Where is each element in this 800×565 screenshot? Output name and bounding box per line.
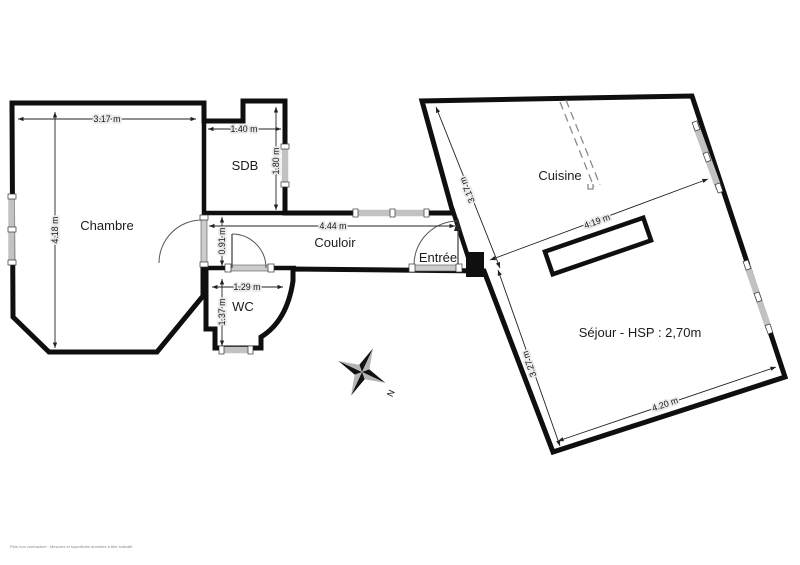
dim-label: 3.17 m [94, 114, 121, 124]
door-jamb [409, 264, 415, 272]
dim-label: 0.91 m [217, 228, 227, 255]
wall-stub-entree-sejour [466, 252, 484, 277]
door-jamb [200, 262, 208, 267]
page-background [0, 0, 800, 565]
dim-label: 4.18 m [50, 217, 60, 244]
dim-label: 1.40 m [231, 124, 258, 134]
window-cap [8, 194, 16, 199]
room-label-sejour: Séjour - HSP : 2,70m [579, 325, 702, 340]
door-jamb [200, 215, 208, 220]
window-cap [8, 227, 16, 232]
watermark-text: Plan non contractuel - Mesures et superf… [10, 544, 133, 549]
window-cap [424, 209, 429, 217]
room-label-chambre: Chambre [80, 218, 133, 233]
entrance-door-band [412, 265, 458, 271]
window-cap [281, 182, 289, 187]
window-cap [390, 209, 395, 217]
chambre-door-leaf [201, 218, 207, 264]
dim-label: 1.29 m [234, 282, 261, 292]
window-cap [248, 346, 253, 354]
room-label-cuisine: Cuisine [538, 168, 581, 183]
door-jamb [268, 264, 274, 272]
wc-door-band [228, 265, 272, 271]
dim-label: 1.37 m [217, 299, 227, 326]
floor-plan-drawing: 3.17 m 4.18 m 1.40 m 1.80 m 4.44 m 0.91 … [0, 0, 800, 565]
room-label-couloir: Couloir [314, 235, 356, 250]
door-jamb [456, 264, 462, 272]
room-label-sdb: SDB [232, 158, 259, 173]
room-label-wc: WC [232, 299, 254, 314]
floor-plan-page: 3.17 m 4.18 m 1.40 m 1.80 m 4.44 m 0.91 … [0, 0, 800, 565]
room-label-entree: Entrée [419, 250, 457, 265]
dim-label: 1.80 m [271, 148, 281, 175]
window-cap [219, 346, 224, 354]
window-cap [353, 209, 358, 217]
door-jamb [225, 264, 231, 272]
dim-label: 4.44 m [320, 221, 347, 231]
window-cap [8, 260, 16, 265]
window-cap [281, 144, 289, 149]
